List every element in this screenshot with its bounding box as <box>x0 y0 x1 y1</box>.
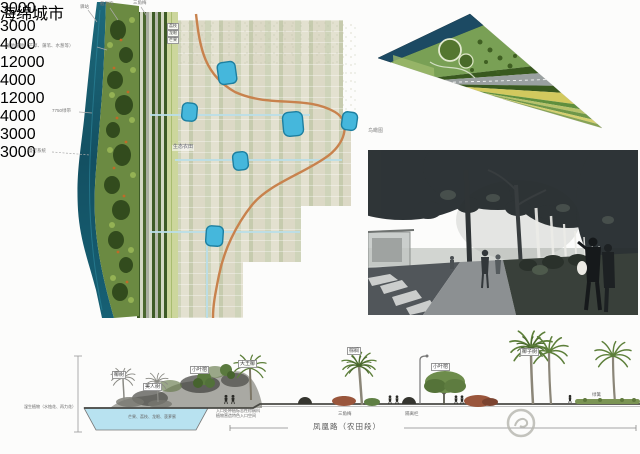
bus-shelter <box>368 230 414 268</box>
plant-label-ficus-1: 小叶榕 <box>190 366 209 374</box>
cross-section-drawing <box>0 322 640 454</box>
hedge-label: 绿篱 <box>592 392 601 398</box>
barrier-label: 隔离栏 <box>405 411 419 417</box>
plant-label-coconut-2: 椰子树 <box>520 348 539 356</box>
wetland-note: 湿生植物（水烛花、再力花） <box>24 404 76 410</box>
greenbelt-label: 7750绿带 <box>52 109 71 114</box>
site-plan: 驿站 截洪沟 三角梅 湿地植物（芒草、蒲苇、水葱等） 7750绿带 慢行系统 荔… <box>0 0 360 320</box>
plant-label-coconut: 椰树 <box>112 371 126 379</box>
orchard-label-3: 芒果 <box>167 37 179 44</box>
orchard-label-1: 荔枝 <box>167 23 179 30</box>
slow-traffic-label: 慢行系统 <box>28 149 46 154</box>
plant-label-silk-floss: 美人树 <box>143 383 162 391</box>
ficus-tree <box>424 371 466 405</box>
orchard-label-2: 龙眼 <box>167 30 179 37</box>
left-dimension-line <box>74 356 82 432</box>
farmland-label: 生态农田 <box>172 145 194 151</box>
plant-label-palm: 棕榈 <box>347 347 361 355</box>
coconut-palms <box>510 331 568 404</box>
greenway-path <box>196 14 345 318</box>
wetland-plants-label: 湿地植物（芒草、蒲苇、水葱等） <box>6 44 74 49</box>
plant-label-ficus-2: 小叶榕 <box>431 363 450 371</box>
aerial-caption: 鸟瞰图 <box>368 129 383 135</box>
plan-top-label-1: 驿站 <box>80 5 89 10</box>
shrub-label: 三角梅 <box>338 411 352 417</box>
orchard-note: 芒果、荔枝、龙眼、菠萝蜜 <box>128 414 176 420</box>
section-people <box>224 395 571 404</box>
hedge-row <box>575 398 640 404</box>
plan-top-label-3: 三角梅 <box>133 1 147 6</box>
aerial-view <box>360 0 640 135</box>
road-title: 凤凰路（农田段） <box>290 421 404 432</box>
plan-top-label-2: 截洪沟 <box>100 2 114 7</box>
sponge-city-logo-icon <box>505 407 537 439</box>
plant-label-royal-palm: 大王椰 <box>238 360 257 368</box>
photo-shapes <box>368 150 638 315</box>
article-figure: { "watermark": { "text": "海绵城市" }, "plan… <box>0 0 640 454</box>
entrance-note-line2: 植物营造特色入口空间 <box>216 413 256 419</box>
street-perspective-photo <box>368 150 638 315</box>
